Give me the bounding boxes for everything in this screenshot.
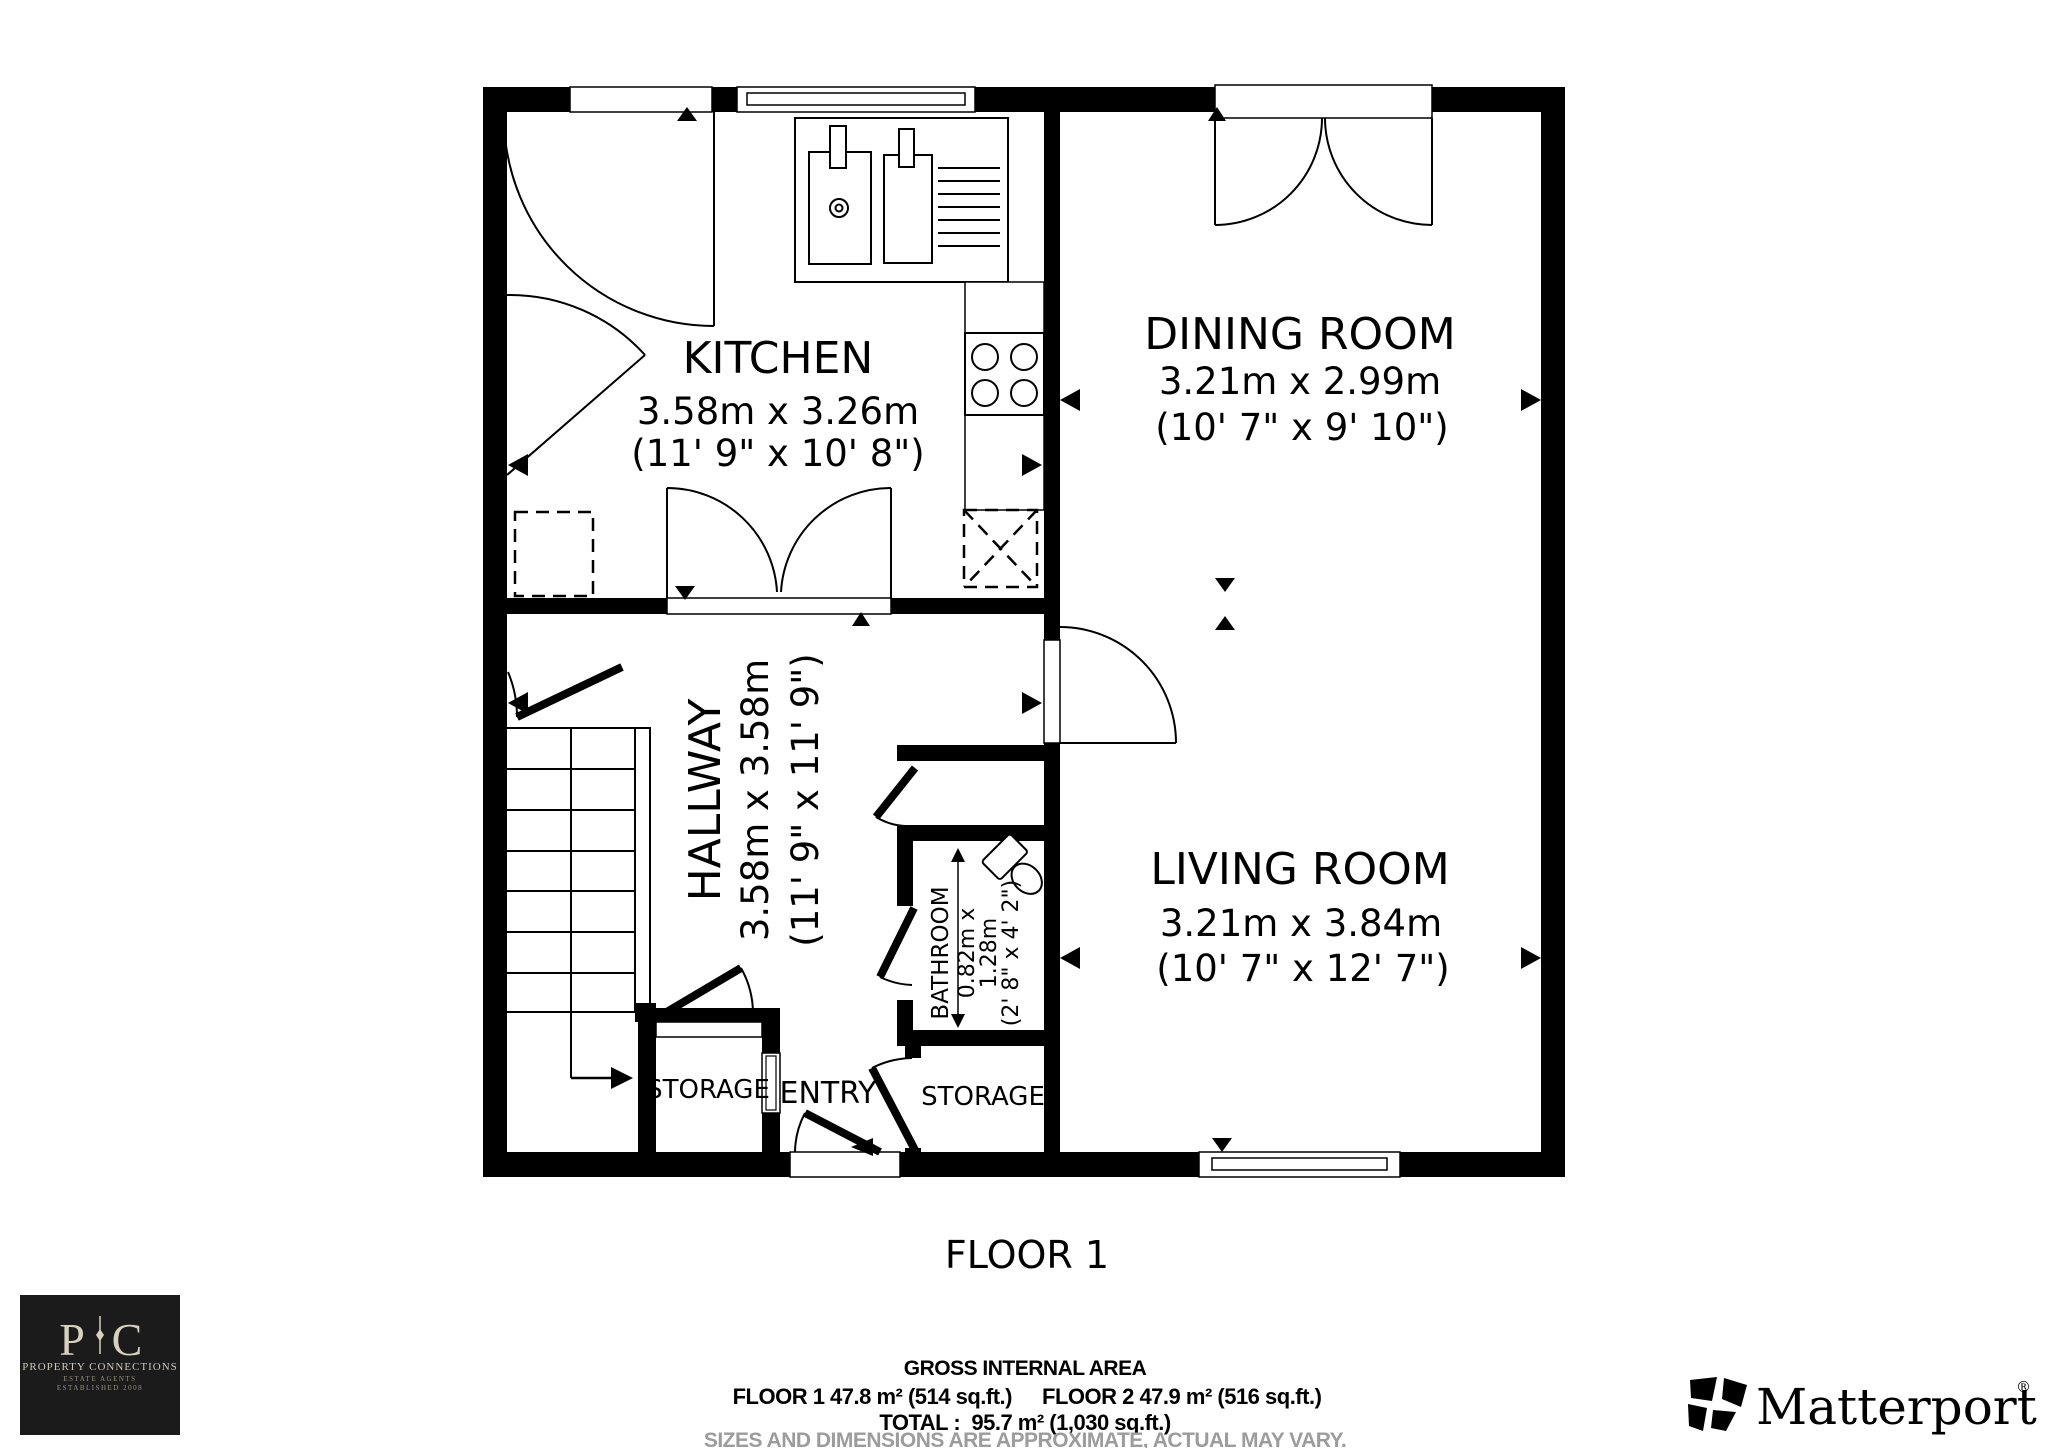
sink-icon (795, 118, 1008, 282)
agency-name: PROPERTY CONNECTIONS (22, 1361, 178, 1373)
disclaimer-text: SIZES AND DIMENSIONS ARE APPROXIMATE, AC… (704, 1429, 1346, 1448)
kitchen-door-opening (570, 87, 712, 112)
agency-tagline2: ESTABLISHED 2008 (57, 1384, 143, 1392)
room-dim-kitchen-imperial: (11' 9" x 10' 8") (631, 432, 924, 475)
room-dim-hallway-imperial: (11' 9" x 11' 9") (784, 653, 827, 946)
floor-title: FLOOR 1 (945, 1233, 1109, 1277)
dimension-arrow-icon (1521, 389, 1541, 411)
dimension-arrow-icon (1215, 616, 1235, 630)
dimension-arrow-icon (1022, 692, 1042, 714)
matterport-logo: Matterport ® (1688, 1377, 2037, 1436)
floor1-area: FLOOR 1 47.8 m² (514 sq.ft.) (733, 1384, 1013, 1409)
room-label-living: LIVING ROOM (1150, 844, 1449, 895)
room-dim-living-imperial: (10' 7" x 12' 7") (1156, 947, 1449, 990)
room-label-entry: ENTRY (780, 1076, 878, 1111)
dimension-arrow-icon (1212, 1138, 1232, 1152)
agency-logo: P C PROPERTY CONNECTIONS ESTATE AGENTS E… (20, 1295, 180, 1435)
dimension-arrow-icon (1060, 389, 1080, 411)
entry-door-opening (790, 1152, 900, 1177)
door-swing-icon-kitchen-left (507, 295, 645, 475)
room-dim-hallway-metric: 3.58m x 3.58m (734, 659, 777, 941)
room-label-bathroom: BATHROOM (928, 886, 954, 1019)
dashed-cross-box (964, 510, 1037, 587)
room-dim-kitchen-metric: 3.58m x 3.26m (637, 390, 919, 433)
dimension-arrow-icon (1521, 947, 1541, 969)
dining-door-opening (1215, 85, 1432, 118)
agency-monogram-c: C (112, 1314, 143, 1365)
door-swing-icon-bathroom (880, 908, 914, 985)
dimension-arrow-icon (508, 692, 528, 714)
living-room-window-icon (1199, 1152, 1400, 1177)
stairs-direction-arrow-icon (611, 1067, 633, 1089)
kitchen-window-icon (737, 87, 975, 112)
double-door-icon-dining (1215, 118, 1432, 225)
door-swing-icon-niche (876, 768, 915, 826)
room-label-storage-right: STORAGE (921, 1082, 1045, 1112)
room-label-dining: DINING ROOM (1144, 309, 1456, 360)
dimension-arrow-icon (1060, 947, 1080, 969)
floor2-area: FLOOR 2 47.9 m² (516 sq.ft.) (1042, 1384, 1322, 1409)
hob-icon (965, 333, 1044, 415)
room-dim-dining-imperial: (10' 7" x 9' 10") (1155, 406, 1448, 449)
kitchen-french-door-opening (667, 598, 891, 614)
storage-left-door-recess (656, 1022, 762, 1037)
room-label-kitchen: KITCHEN (683, 333, 874, 384)
agency-monogram-p: P (59, 1314, 85, 1365)
door-swing-icon-kitchen-top (504, 112, 714, 326)
double-door-icon-kitchen (667, 488, 891, 598)
door-swing-icon-storage-right (872, 1058, 915, 1150)
stairs-icon (507, 728, 656, 1089)
stair-handrail (635, 728, 650, 1005)
dimension-arrow-icon (1215, 578, 1235, 592)
matterport-registered-mark: ® (2016, 1378, 2031, 1396)
matterport-mark-icon (1688, 1377, 1747, 1431)
agency-tagline1: ESTATE AGENTS (63, 1375, 136, 1383)
room-dim-dining-metric: 3.21m x 2.99m (1159, 360, 1441, 403)
room-dim-bathroom-imperial: (2' 8" x 4' 2") (999, 880, 1024, 1026)
hallway-dining-door-frame (1044, 640, 1060, 743)
room-dim-living-metric: 3.21m x 3.84m (1160, 902, 1442, 945)
gross-internal-area-title: GROSS INTERNAL AREA (904, 1357, 1147, 1380)
dashed-unit-box (515, 512, 593, 596)
room-label-storage-left: STORAGE (646, 1075, 770, 1105)
floor-plan-canvas: KITCHEN 3.58m x 3.26m (11' 9" x 10' 8") … (0, 0, 2048, 1448)
room-label-hallway: HALLWAY (680, 698, 731, 901)
matterport-wordmark: Matterport (1756, 1378, 2037, 1436)
area-summary: GROSS INTERNAL AREA FLOOR 1 47.8 m² (514… (704, 1357, 1346, 1448)
door-swing-icon-hallway-dining (1060, 627, 1176, 743)
dimension-arrows (508, 107, 1541, 1156)
